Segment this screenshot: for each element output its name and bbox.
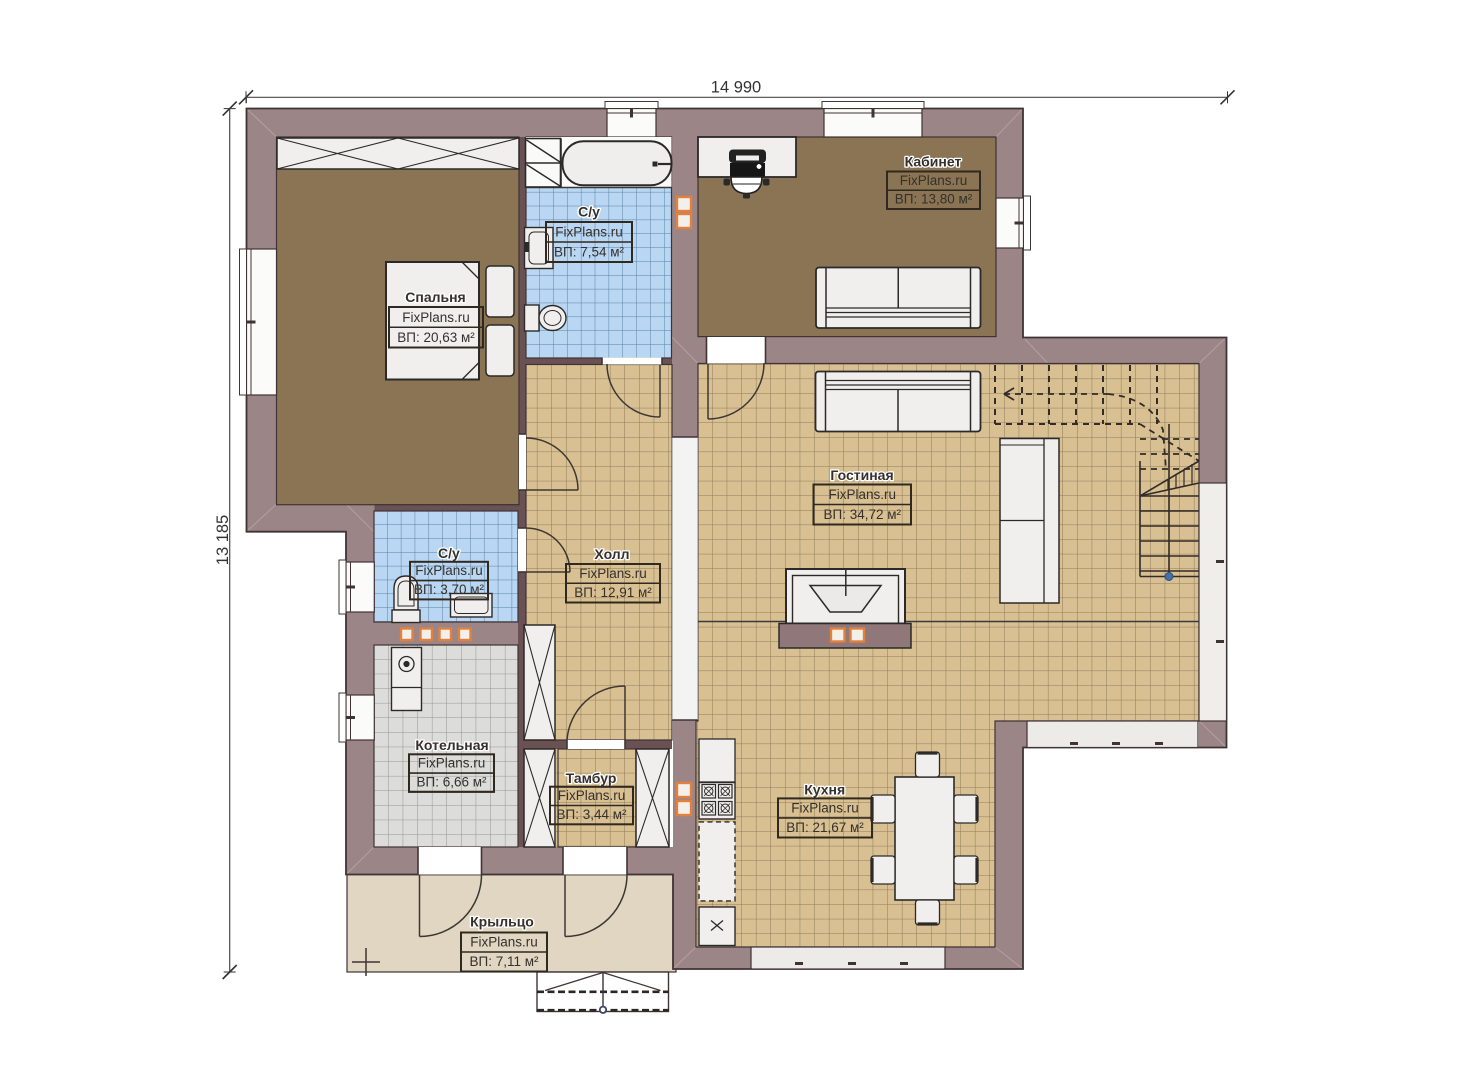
svg-text:Тамбур: Тамбур [566,770,617,786]
svg-text:Гостиная: Гостиная [830,467,893,483]
svg-text:ВП: 12,91 м²: ВП: 12,91 м² [574,585,652,600]
svg-text:FixPlans.ru: FixPlans.ru [470,935,538,950]
svg-text:ВП: 13,80 м²: ВП: 13,80 м² [895,192,973,207]
svg-text:FixPlans.ru: FixPlans.ru [791,800,859,815]
svg-text:FixPlans.ru: FixPlans.ru [828,487,896,502]
svg-text:14 990: 14 990 [711,79,761,97]
svg-text:Кухня: Кухня [804,781,845,797]
svg-text:Спальня: Спальня [405,289,465,305]
svg-text:ВП: 7,54 м²: ВП: 7,54 м² [554,245,625,260]
svg-text:FixPlans.ru: FixPlans.ru [402,310,470,325]
svg-text:FixPlans.ru: FixPlans.ru [900,173,968,188]
svg-text:FixPlans.ru: FixPlans.ru [579,566,647,581]
svg-text:13 185: 13 185 [214,515,232,565]
svg-text:ВП: 21,67 м²: ВП: 21,67 м² [786,820,864,835]
svg-text:ВП: 3,44 м²: ВП: 3,44 м² [556,807,627,822]
svg-text:Холл: Холл [594,546,629,562]
svg-text:С/у: С/у [578,204,600,220]
svg-text:ВП: 7,11 м²: ВП: 7,11 м² [469,954,539,969]
svg-text:ВП: 3,70 м²: ВП: 3,70 м² [414,582,485,597]
svg-text:FixPlans.ru: FixPlans.ru [558,788,626,803]
svg-text:Кабинет: Кабинет [905,154,962,170]
svg-text:ВП: 20,63 м²: ВП: 20,63 м² [397,330,475,345]
svg-text:ВП: 6,66 м²: ВП: 6,66 м² [416,774,487,789]
svg-text:Котельная: Котельная [415,737,488,753]
svg-text:ВП: 34,72 м²: ВП: 34,72 м² [823,507,901,522]
svg-text:С/у: С/у [438,545,460,561]
svg-text:Крыльцо: Крыльцо [470,914,534,930]
svg-text:FixPlans.ru: FixPlans.ru [418,756,486,771]
svg-text:FixPlans.ru: FixPlans.ru [415,563,483,578]
svg-text:FixPlans.ru: FixPlans.ru [555,225,623,240]
